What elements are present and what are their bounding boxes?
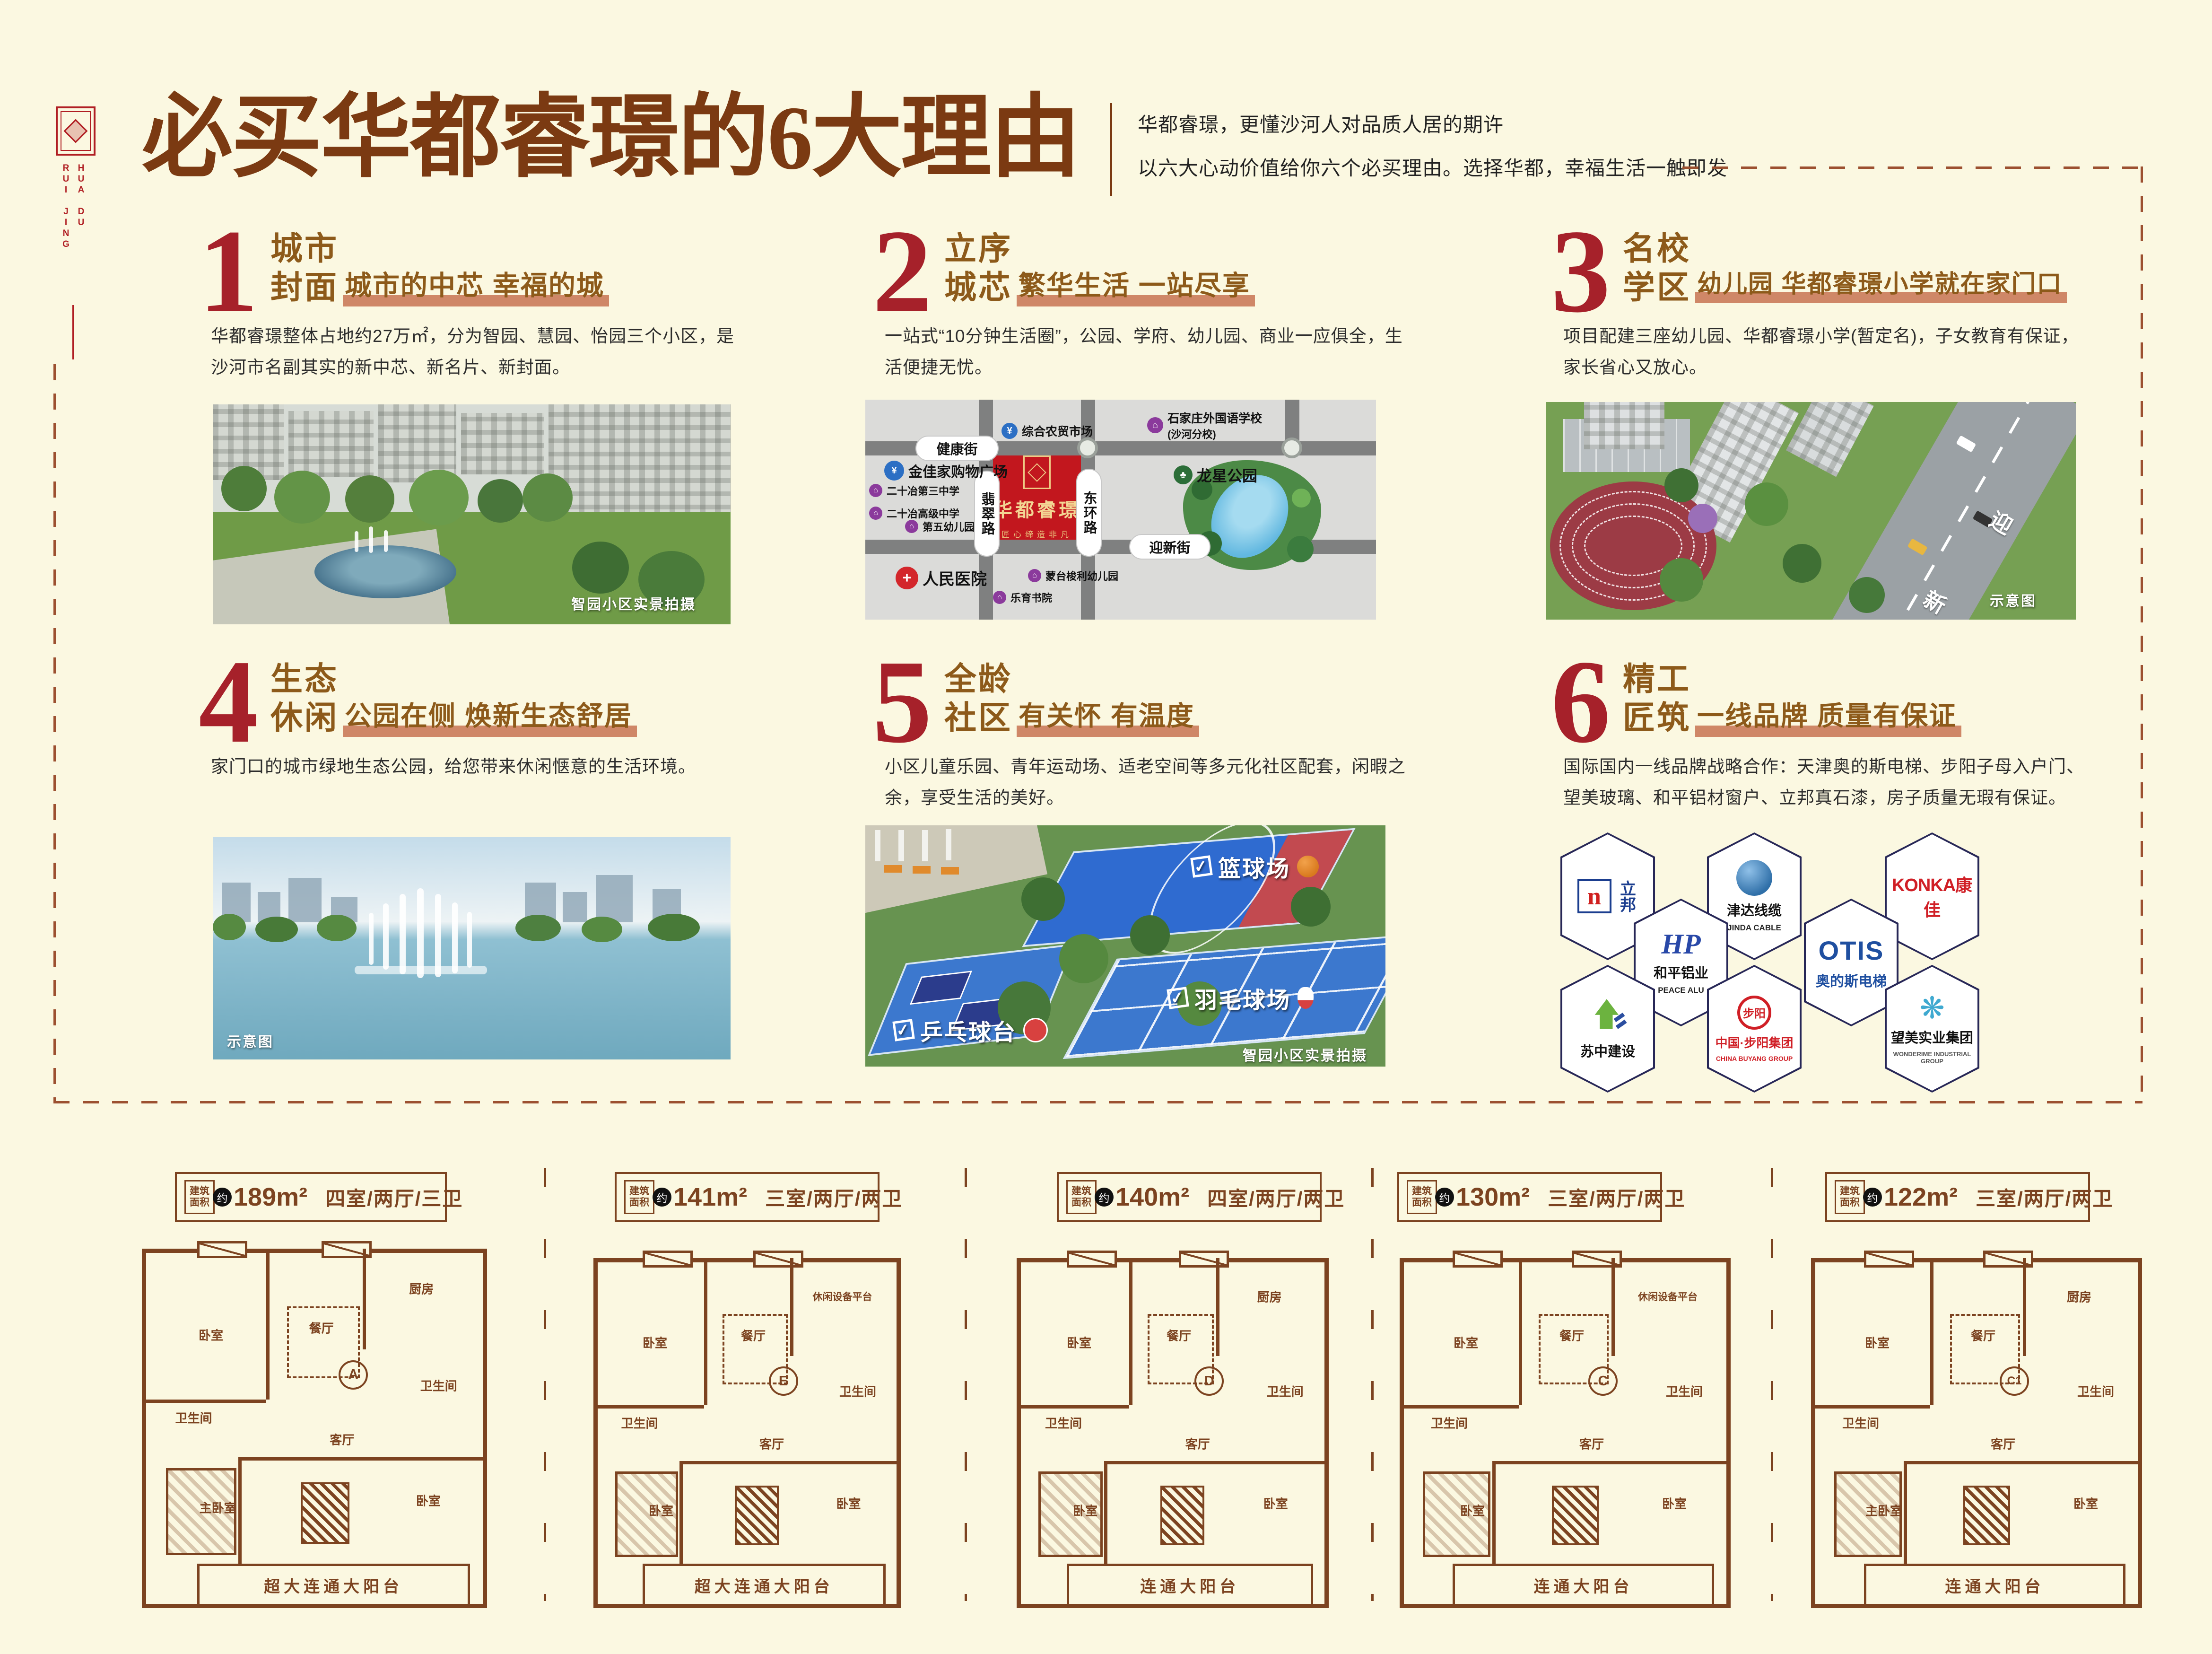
poi-hospital: +人民医院: [896, 566, 987, 589]
section-1-number: 1: [199, 218, 258, 325]
section-3-photo-school: 迎 新 示意图: [1546, 402, 2076, 620]
poi-park: ♣龙星公园: [1174, 464, 1257, 486]
area-badge: 建筑面积: [1066, 1180, 1097, 1214]
badge-badminton: ✓ 羽毛球场: [1168, 981, 1314, 1015]
plan-2-area: 141m²: [673, 1182, 747, 1212]
shuttlecock-icon: [1298, 987, 1314, 1009]
checkbox-icon: ✓: [1167, 987, 1189, 1009]
section-3-body: 项目配建三座幼儿园、华都睿璟小学(暂定名)，子女教育有保证，家长省心又放心。: [1563, 321, 2090, 383]
jinda-sphere-icon: [1736, 860, 1772, 896]
road-label-jiankang: 健康街: [915, 436, 999, 461]
plan-2-balcony: 超大连通大阳台: [643, 1564, 886, 1606]
subtitle-line2: 以六大心动价值给你六个必买理由。选择华都，幸福生活一触即发: [1138, 152, 1727, 181]
brand-konka: KONKA康佳: [1885, 832, 1979, 960]
poi-foreign-school: ⌂ 石家庄外国语学校(沙河分校): [1147, 409, 1262, 441]
plan-4-layout: 三室/两厅/两卫: [1537, 1183, 1696, 1212]
section-5-number: 5: [872, 648, 932, 755]
approx-badge: 约: [653, 1188, 671, 1207]
area-badge: 建筑面积: [624, 1180, 654, 1214]
page-title: 必买华都睿璟的6大理由: [142, 93, 1080, 184]
floorplan-2: 卧室餐厅 休闲设备平台卫生间 卧室客厅 卧室卫生间 E 超大连通大阳台: [593, 1258, 901, 1608]
road-label-yingxin: 迎新街: [1129, 534, 1211, 560]
floorplan-4: 卧室餐厅 休闲设备平台卫生间 卧室客厅 卧室卫生间 C 连通大阳台: [1400, 1258, 1731, 1608]
section-3-number: 3: [1551, 218, 1611, 325]
plan-1-label: 建筑面积 约 189m² 四室/两厅/三卫: [175, 1172, 447, 1222]
brand-buyang: 步阳 中国·步阳集团 CHINA BUYANG GROUP: [1707, 965, 1802, 1093]
section-6-tagline: 一线品牌 质量有保证: [1695, 694, 1961, 737]
brand-otis: OTIS 奥的斯电梯: [1804, 899, 1898, 1026]
section-2-location: 2 立序 城芯 繁华生活 一站尽享 一站式“10分钟生活圈”，公园、学府、幼儿园…: [872, 222, 1421, 648]
section-2-number: 2: [872, 218, 932, 325]
mall-icon: ¥: [884, 461, 904, 481]
wonderime-snowflake-icon: ❋: [1919, 993, 1945, 1023]
section-3-tagline: 幼儿园 华都睿璟小学就在家门口: [1695, 264, 2067, 303]
plan-1-balcony: 超大连通大阳台: [197, 1564, 470, 1606]
brand-honeycomb: n 立邦 津达线缆 JINDA CABLE KONKA康佳 HP 和平铝业 PE…: [1546, 830, 2085, 1095]
section-4-ecology: 4 生态 休闲 公园在侧 焕新生态舒居 家门口的城市绿地生态公园，给您带来休闲惬…: [199, 653, 747, 1078]
paddle-icon: [1023, 1018, 1048, 1042]
brand-suzhong: 苏中建设: [1560, 965, 1655, 1093]
plan-2-layout: 三室/两厅/两卫: [755, 1183, 913, 1212]
section-5-title-line2: 社区: [944, 691, 1012, 738]
logo-col2: RUI JING: [61, 163, 71, 250]
plan-3-area: 140m²: [1115, 1182, 1189, 1212]
section-1-photo-community: 智园小区实景拍摄: [213, 404, 731, 624]
section-2-tagline: 繁华生活 一站尽享: [1017, 264, 1255, 306]
plan-separator: [544, 1168, 546, 1601]
section-2-title-line2: 城芯: [944, 261, 1012, 308]
plan-1-area: 189m²: [234, 1182, 307, 1212]
huadu-seal-icon: [56, 106, 96, 156]
park-icon: ♣: [1174, 465, 1193, 484]
poi-mall: ¥金佳家购物广场: [884, 460, 1008, 481]
poi-school3: ⌂二十冶第三中学: [869, 483, 959, 498]
floorplan-1: 卧室餐厅 厨房卫生间 主卧室客厅 卧室卫生间 A 超大连通大阳台: [142, 1249, 487, 1608]
logo-vertical-text: RUI JING HUA DU: [61, 163, 86, 250]
plan-5-label: 建筑面积 约 122m² 三室/两厅/两卫: [1825, 1172, 2090, 1222]
section-6-body: 国际国内一线品牌战略合作：天津奥的斯电梯、步阳子母入户门、望美玻璃、和平铝材窗户…: [1563, 751, 2090, 814]
section-3-photo-caption: 示意图: [1990, 589, 2037, 610]
poi-market: ¥综合农贸市场: [1001, 422, 1093, 439]
section-4-number: 4: [199, 648, 258, 755]
plan-5-area: 122m²: [1884, 1182, 1958, 1212]
nippon-n-icon: n: [1577, 879, 1611, 913]
checkbox-icon: ✓: [1190, 855, 1212, 877]
school-icon: ⌂: [869, 484, 882, 497]
area-badge: 建筑面积: [184, 1180, 215, 1214]
plan-3-label: 建筑面积 约 140m² 四室/两厅/两卫: [1057, 1172, 1322, 1222]
road-label-feicui: 翡翠路: [974, 471, 1000, 557]
badge-pingpong: ✓ 乒乓球台: [894, 1014, 1048, 1047]
section-2-body: 一站式“10分钟生活圈”，公园、学府、幼儿园、商业一应俱全，生活便捷无忧。: [885, 321, 1411, 383]
section-4-photo-caption: 示意图: [227, 1030, 274, 1051]
plan-separator: [1371, 1168, 1374, 1601]
plan-1-layout: 四室/两厅/三卫: [315, 1183, 473, 1212]
section-3-school-district: 3 名校 学区 幼儿园 华都睿璟小学就在家门口 项目配建三座幼儿园、华都睿璟小学…: [1551, 222, 2099, 648]
logo-line: [72, 305, 74, 359]
approx-badge: 约: [1863, 1188, 1882, 1207]
hospital-cross-icon: +: [896, 567, 918, 589]
area-badge: 建筑面积: [1407, 1180, 1437, 1214]
plan-1-letter: A: [339, 1360, 368, 1390]
section-1-tagline: 城市的中芯 幸福的城: [343, 264, 609, 306]
section-6-number: 6: [1551, 648, 1611, 755]
approx-badge: 约: [1435, 1188, 1454, 1207]
frame-top-dash: [1682, 166, 2142, 169]
plan-4-balcony: 连通大阳台: [1453, 1564, 1714, 1606]
section-4-photo-lake: 示意图: [213, 837, 731, 1059]
title-divider: [1110, 103, 1112, 196]
plan-4-area: 130m²: [1456, 1182, 1530, 1212]
plan-5-balcony: 连通大阳台: [1864, 1564, 2125, 1606]
approx-badge: 约: [213, 1188, 232, 1207]
plan-2-label: 建筑面积 约 141m² 三室/两厅/两卫: [615, 1172, 880, 1222]
project-slogan: 匠心缔造非凡: [1001, 528, 1072, 540]
section-6-craft: 6 精工 匠筑 一线品牌 质量有保证 国际国内一线品牌战略合作：天津奥的斯电梯、…: [1551, 653, 2099, 1078]
market-icon: ¥: [1001, 423, 1018, 439]
section-5-photo-caption: 智园小区实景拍摄: [1243, 1044, 1367, 1065]
school-icon: ⌂: [1147, 417, 1163, 433]
area-badge: 建筑面积: [1835, 1180, 1865, 1214]
suzhong-arrow-icon: [1588, 997, 1628, 1037]
project-emblem-icon: [1023, 455, 1051, 489]
academy-icon: ⌂: [993, 591, 1006, 604]
pond: [314, 545, 456, 598]
poster: RUI JING HUA DU 必买华都睿璟的6大理由 华都睿璟，更懂沙河人对品…: [0, 0, 2212, 1654]
poi-kindergarten5: ⌂第五幼儿园: [905, 519, 975, 534]
section-4-title-line2: 休闲: [270, 691, 339, 738]
school-icon: ⌂: [869, 507, 882, 520]
kindergarten-icon: ⌂: [905, 520, 918, 533]
floorplan-5: 卧室餐厅 厨房卫生间 主卧室客厅 卧室卫生间 C1 连通大阳台: [1811, 1258, 2142, 1608]
plan-2-letter: E: [769, 1366, 798, 1396]
section-3-title-line2: 学区: [1623, 261, 1691, 308]
floorplan-3: 卧室餐厅 厨房卫生间 卧室客厅 卧室卫生间 D 连通大阳台: [1017, 1258, 1329, 1608]
peace-hp-icon: HP: [1661, 930, 1700, 958]
plan-separator: [965, 1168, 967, 1601]
frame-bottom-dash: [53, 1101, 2142, 1103]
section-4-tagline: 公园在侧 焕新生态舒居: [343, 694, 637, 737]
section-5-community: 5 全龄 社区 有关怀 有温度 小区儿童乐园、青年运动场、适老空间等多元化社区配…: [872, 653, 1421, 1078]
kindergarten-icon: ⌂: [1028, 569, 1041, 582]
section-4-body: 家门口的城市绿地生态公园，给您带来休闲惬意的生活环境。: [211, 751, 738, 782]
poi-academy: ⌂乐育书院: [993, 590, 1052, 605]
road-label-donghuan: 东环路: [1076, 469, 1102, 557]
section-6-title-line2: 匠筑: [1623, 691, 1691, 738]
brand-wonderime: ❋ 望美实业集团 WONDERIME INDUSTRIAL GROUP: [1885, 965, 1979, 1093]
plan-4-label: 建筑面积 约 130m² 三室/两厅/两卫: [1397, 1172, 1662, 1222]
logo-col1: HUA DU: [76, 163, 86, 250]
frame-right-dash: [2141, 166, 2143, 1103]
checkbox-icon: ✓: [892, 1019, 914, 1041]
section-1-city-cover: 1 城市 封面 城市的中芯 幸福的城 华都睿璟整体占地约27万㎡，分为智园、慧园…: [199, 222, 747, 648]
approx-badge: 约: [1095, 1188, 1114, 1207]
subtitle-line1: 华都睿璟，更懂沙河人对品质人居的期许: [1138, 109, 1504, 138]
badge-basketball: ✓ 篮球场: [1192, 850, 1319, 883]
section-1-title-line2: 封面: [270, 261, 339, 308]
plan-4-letter: C: [1588, 1366, 1618, 1396]
plan-5-layout: 三室/两厅/两卫: [1965, 1183, 2124, 1212]
section-5-tagline: 有关怀 有温度: [1017, 694, 1199, 737]
plan-3-layout: 四室/两厅/两卫: [1197, 1183, 1355, 1212]
section-5-photo-courts: ✓ 篮球场 ✓ 羽毛球场 ✓ 乒乓球台 智园小区实景拍摄: [865, 825, 1385, 1067]
section-1-photo-caption: 智园小区实景拍摄: [571, 593, 696, 613]
frame-left-dash: [53, 364, 56, 1102]
buyang-ring-icon: 步阳: [1737, 996, 1771, 1030]
section-1-body: 华都睿璟整体占地约27万㎡，分为智园、慧园、怡园三个小区，是沙河市名副其实的新中…: [211, 321, 738, 383]
section-5-body: 小区儿童乐园、青年运动场、适老空间等多元化社区配套，闲暇之余，享受生活的美好。: [885, 751, 1411, 814]
section-2-location-map: 华都睿璟 匠心缔造非凡 健康街 迎新街 翡翠路 东环路 ¥综合农贸市场 ⌂ 石家…: [865, 400, 1376, 620]
project-name: 华都睿璟: [993, 495, 1080, 522]
poi-montessori: ⌂蒙台梭利幼儿园: [1028, 568, 1118, 583]
basketball-icon: [1297, 856, 1319, 877]
plan-separator: [1771, 1168, 1773, 1601]
plan-3-balcony: 连通大阳台: [1067, 1564, 1313, 1606]
plan-5-letter: C1: [2000, 1366, 2029, 1396]
